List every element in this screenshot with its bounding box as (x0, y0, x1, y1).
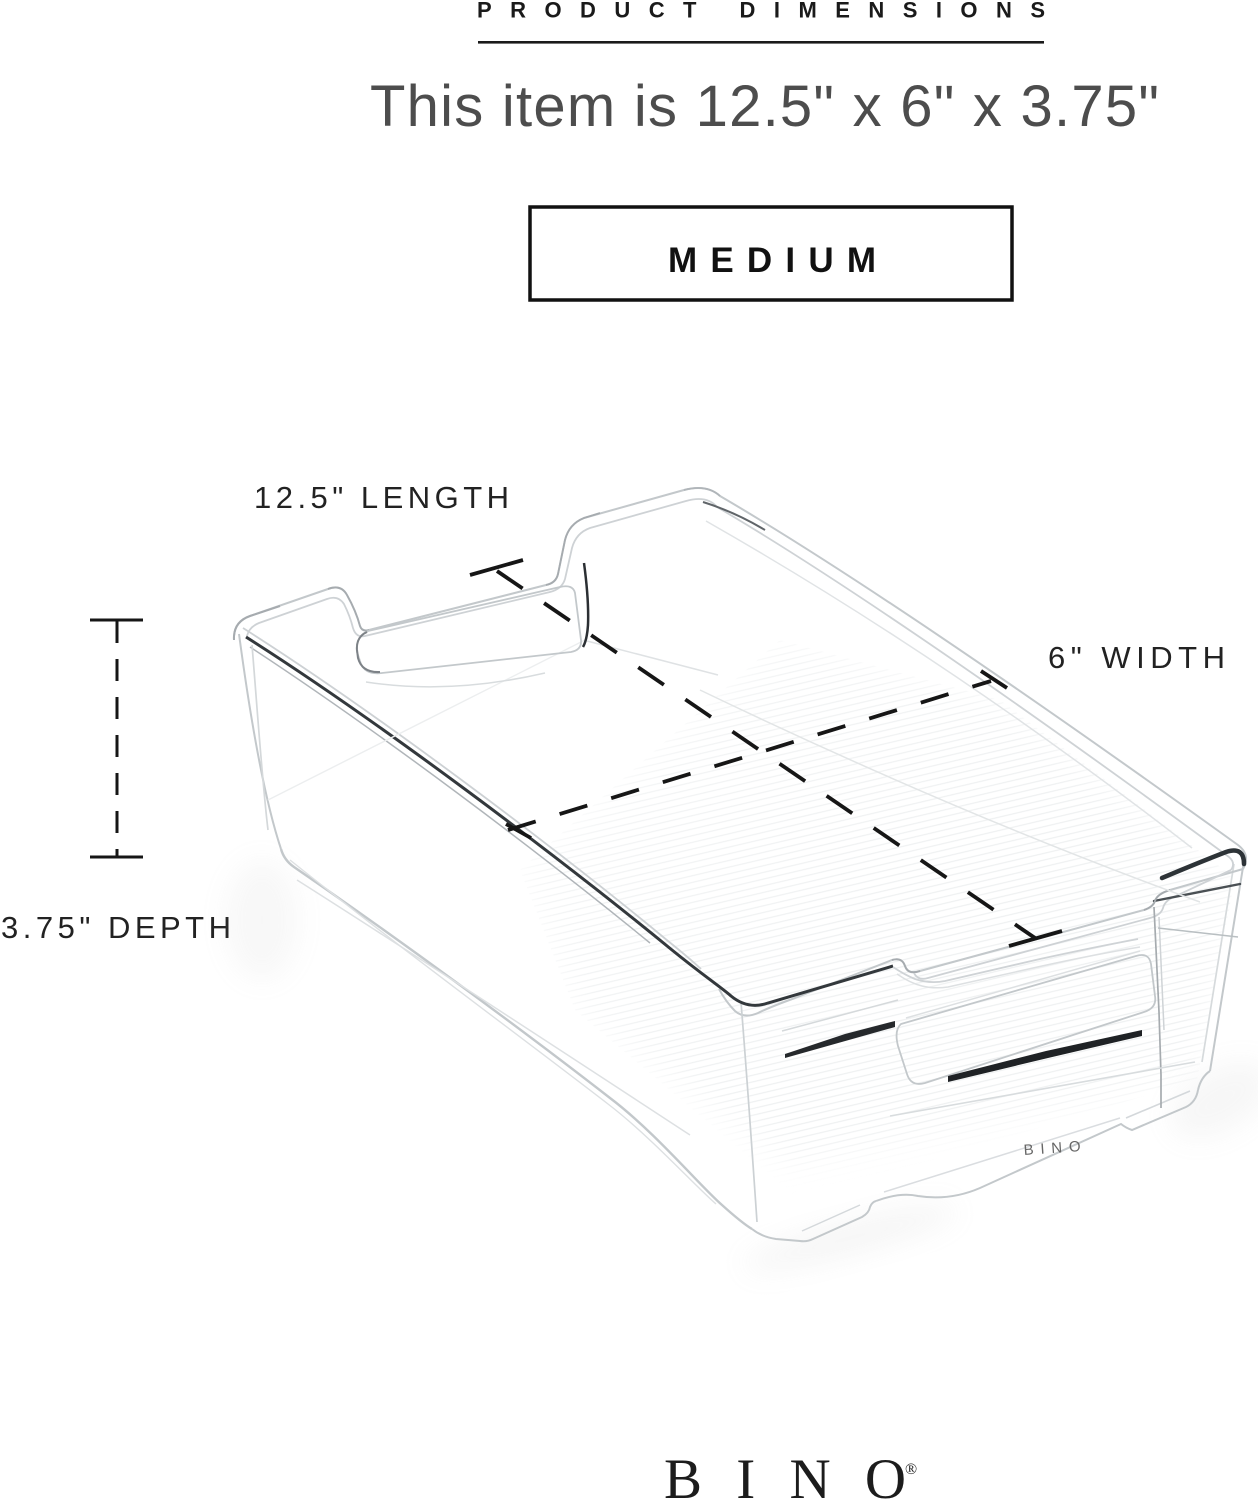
svg-text:®: ® (905, 1461, 917, 1478)
svg-text:3.75" DEPTH: 3.75" DEPTH (1, 910, 231, 945)
svg-text:This item is 12.5" x 6" x 3.75: This item is 12.5" x 6" x 3.75" (370, 74, 1159, 139)
